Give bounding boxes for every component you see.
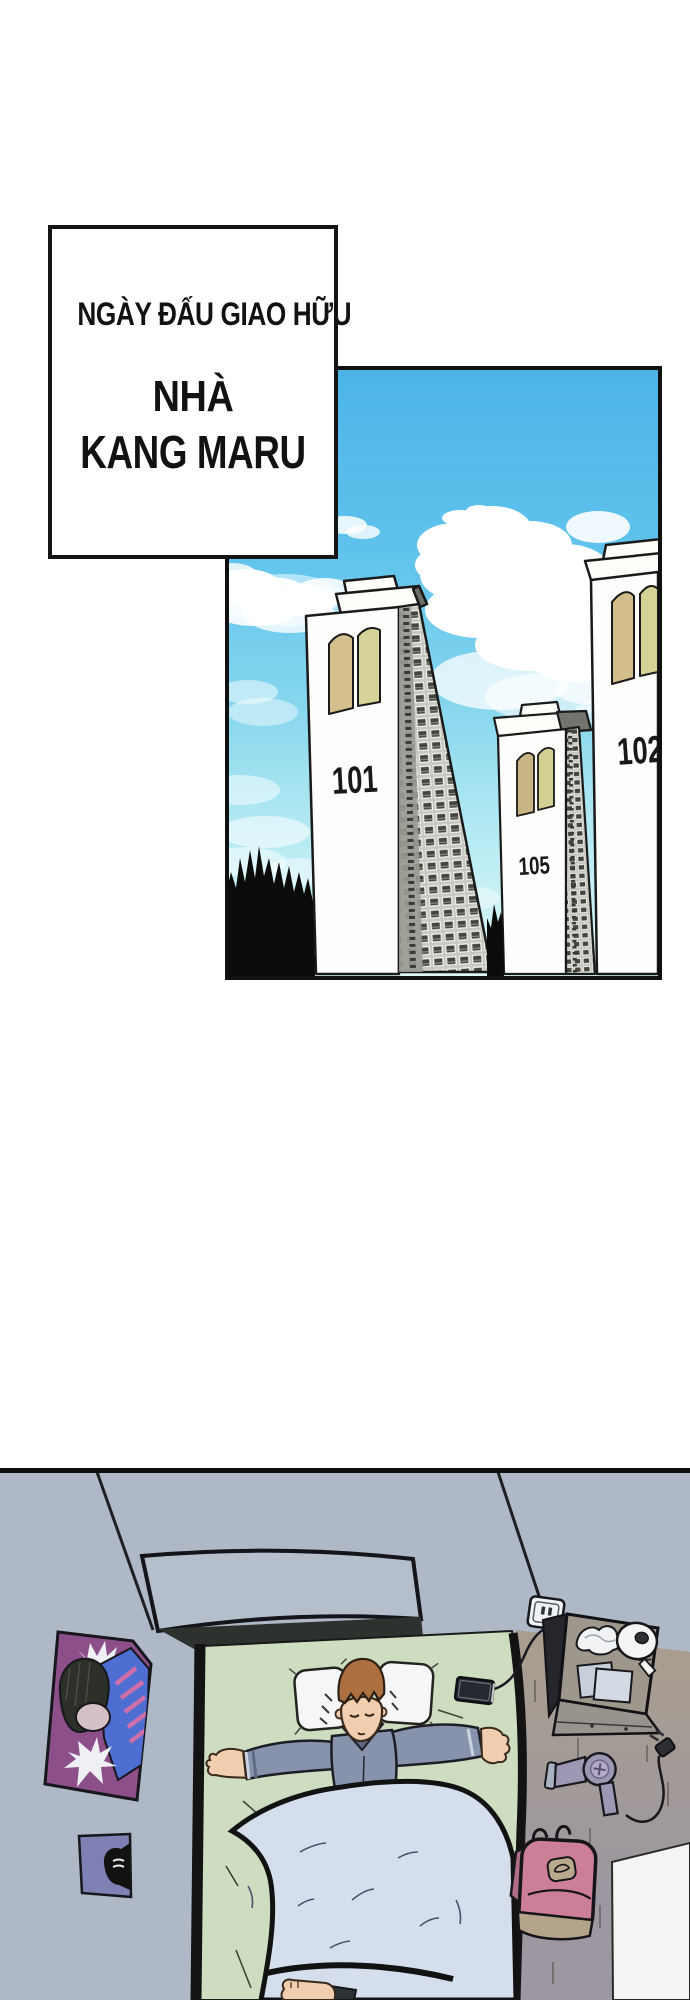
- building-101-number: 101: [331, 761, 379, 801]
- wall-poster: [45, 1632, 151, 1800]
- building-105: [494, 702, 595, 974]
- building-102-number: 102: [616, 731, 662, 772]
- caption-line-3: KANG MARU: [80, 429, 306, 475]
- pillow-right: [376, 1659, 440, 1727]
- building-105-number: 105: [518, 853, 551, 880]
- blanket: [232, 1781, 516, 2000]
- wall-picture-frame: [79, 1834, 131, 1897]
- panel-border: [0, 1468, 690, 1473]
- caption-line-1: NGÀY ĐẤU GIAO HỮU: [77, 298, 308, 330]
- caption-box: NGÀY ĐẤU GIAO HỮU NHÀ KANG MARU: [48, 225, 338, 559]
- phone: [455, 1677, 495, 1704]
- caption-line-2: NHÀ: [72, 375, 315, 419]
- floor-mat: [612, 1843, 690, 2000]
- bedroom-panel: [0, 1468, 690, 2000]
- bedroom-illustration: [0, 1468, 690, 2000]
- tissue: [577, 1626, 621, 1654]
- comic-page: { "caption_box": { "line1": "NGÀY ĐẤU GI…: [0, 0, 690, 2000]
